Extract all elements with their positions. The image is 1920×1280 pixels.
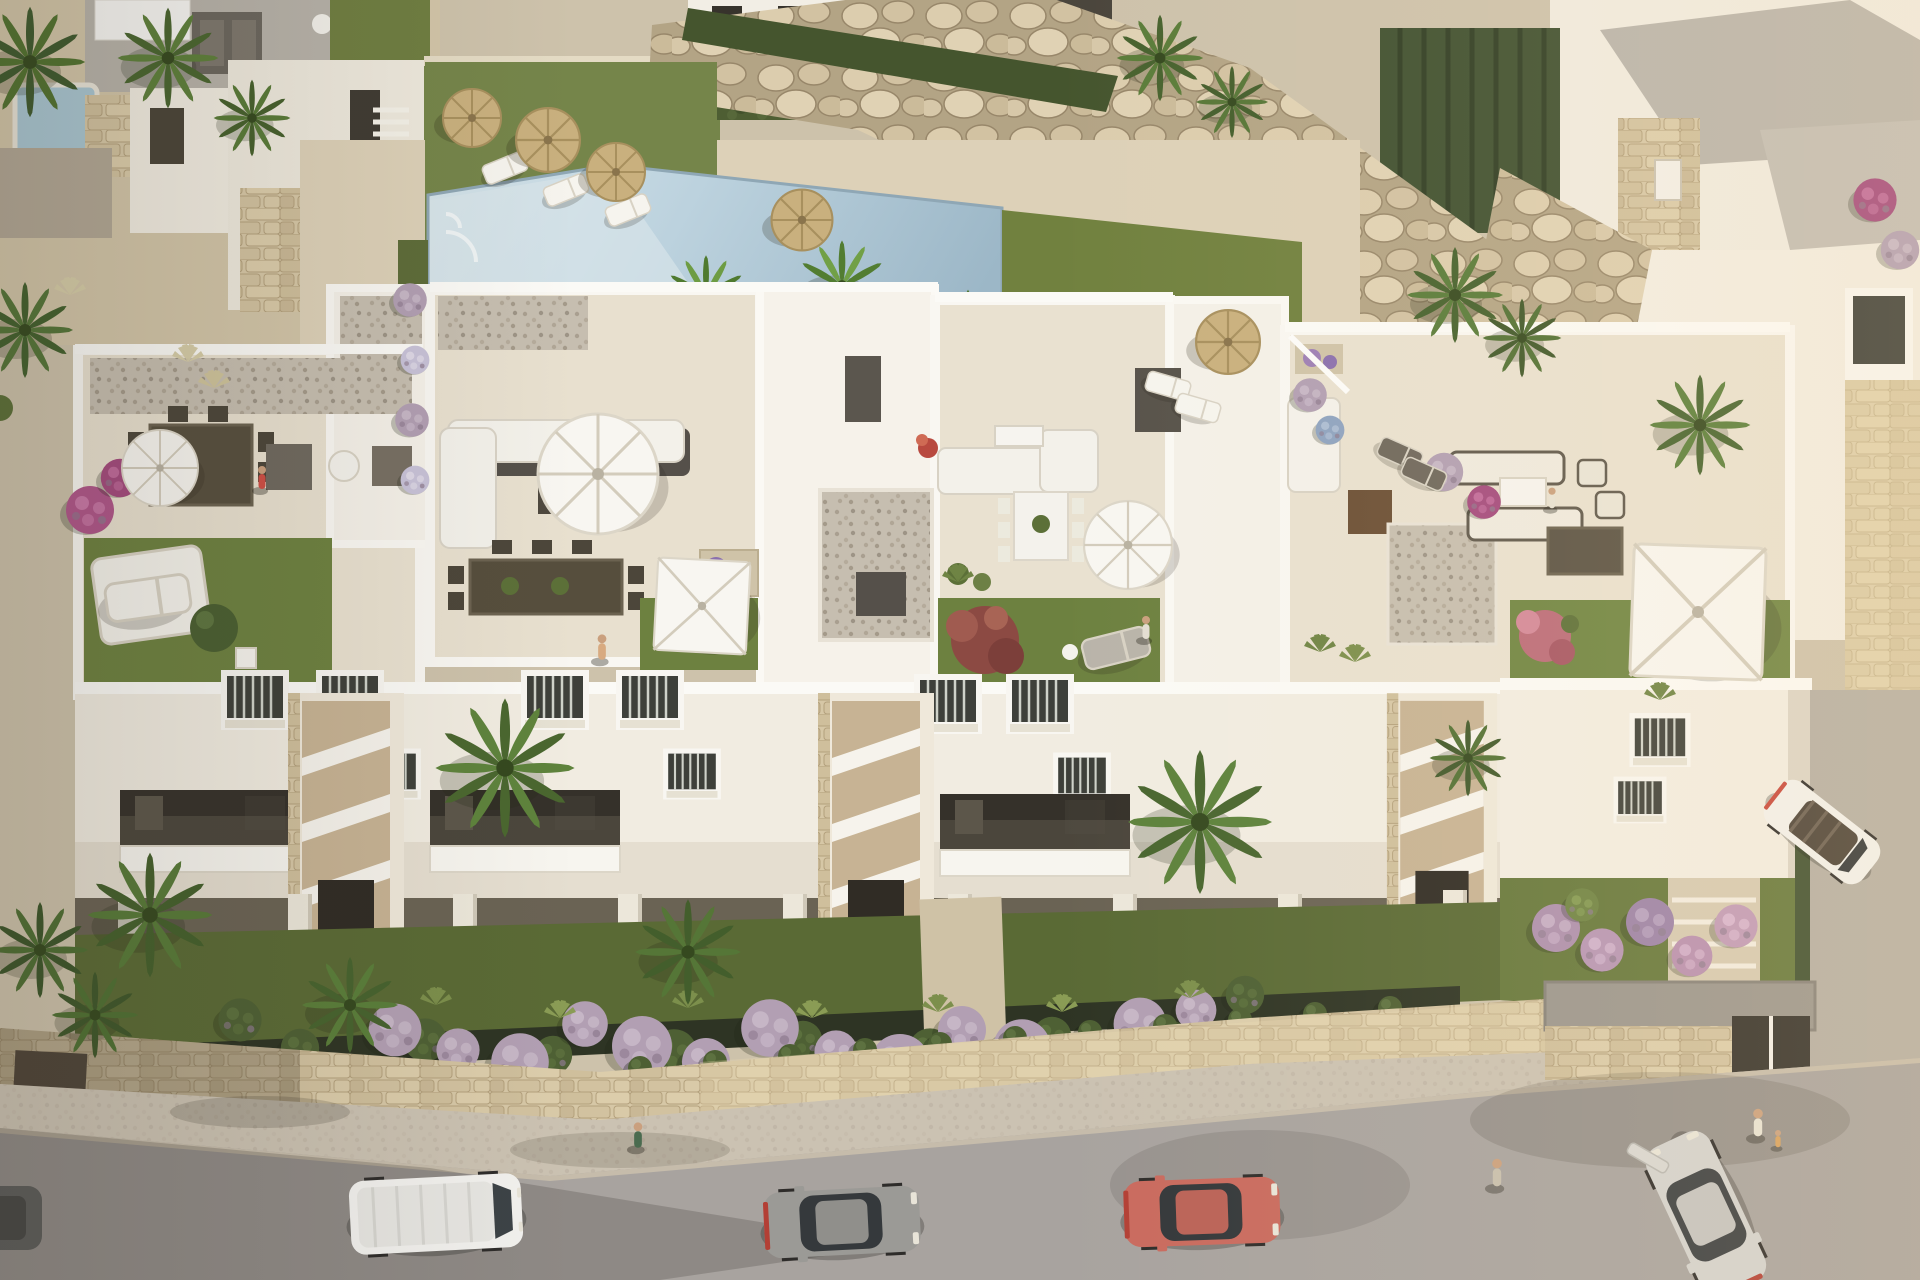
scene-svg bbox=[0, 0, 1920, 1280]
shade-overlay bbox=[0, 0, 1920, 1280]
aerial-render-image bbox=[0, 0, 1920, 1280]
